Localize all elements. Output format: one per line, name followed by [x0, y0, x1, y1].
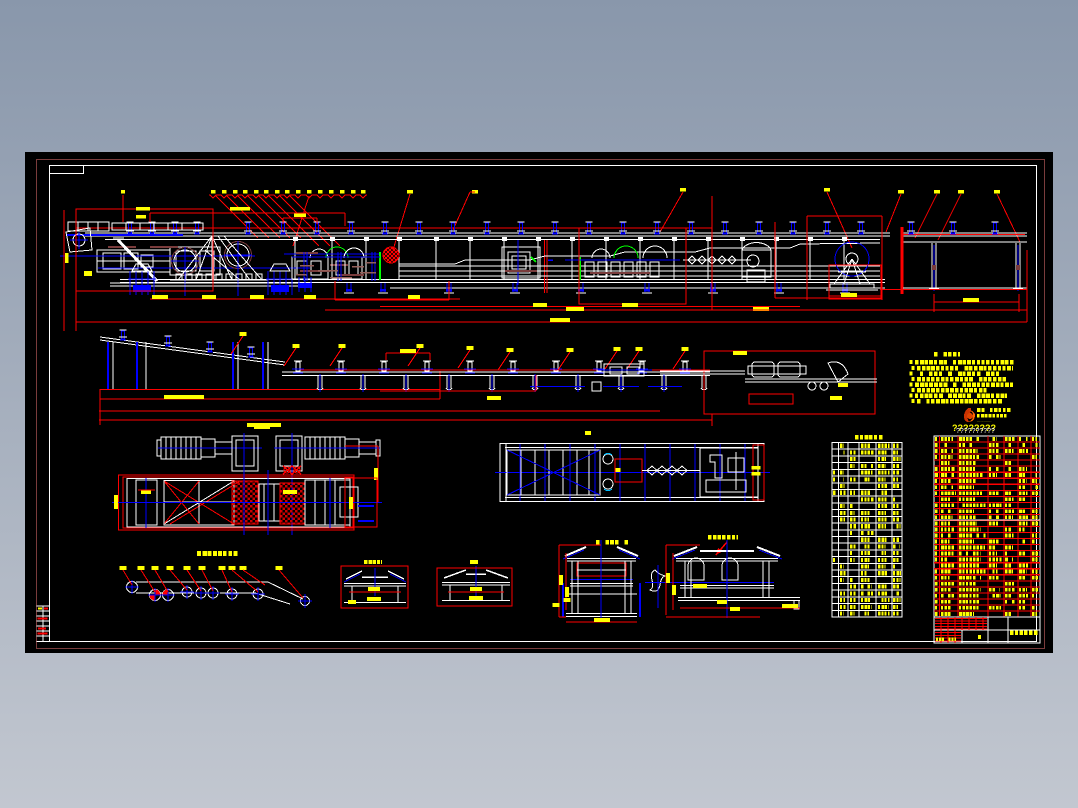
svg-text:??????????: ?????????? — [956, 428, 995, 435]
